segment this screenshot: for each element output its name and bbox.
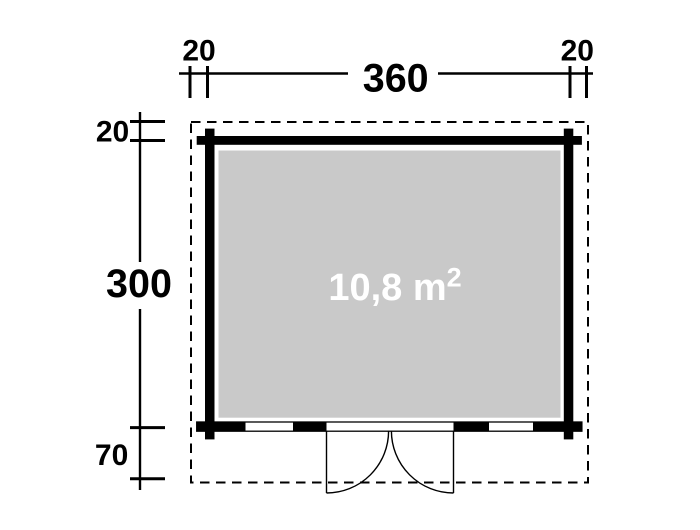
svg-text:20: 20 <box>182 35 215 68</box>
svg-text:70: 70 <box>95 439 128 472</box>
svg-text:300: 300 <box>106 262 172 306</box>
svg-text:360: 360 <box>363 57 429 101</box>
svg-text:10,8 m2: 10,8 m2 <box>328 263 461 310</box>
svg-text:20: 20 <box>96 116 129 149</box>
svg-text:20: 20 <box>561 35 594 68</box>
